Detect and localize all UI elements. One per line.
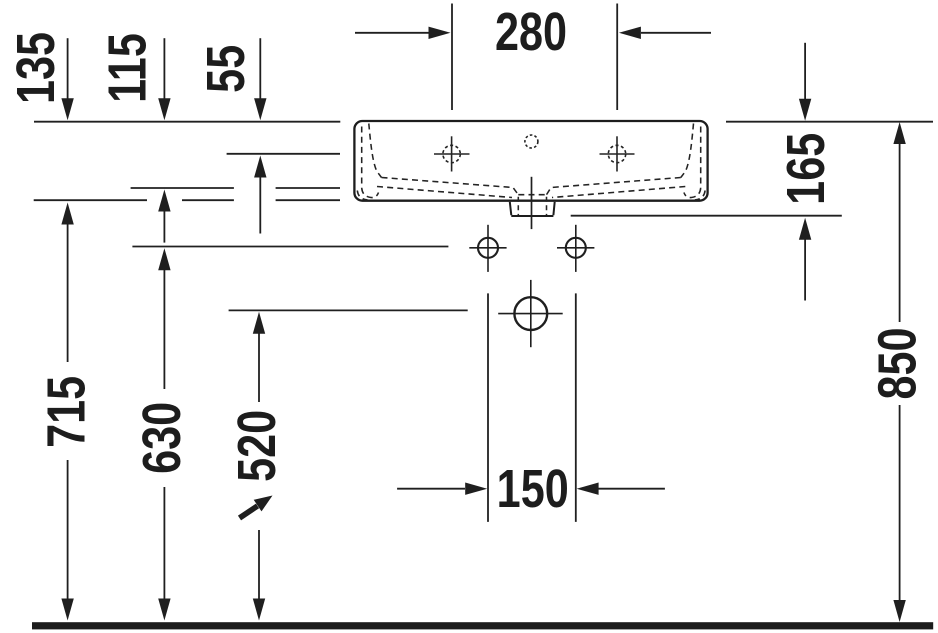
svg-text:280: 280	[495, 3, 567, 63]
svg-text:135: 135	[6, 32, 66, 104]
svg-text:850: 850	[868, 327, 928, 399]
svg-text:715: 715	[37, 376, 97, 448]
svg-text:150: 150	[497, 460, 569, 520]
svg-text:520: 520	[228, 410, 288, 482]
svg-text:55: 55	[197, 45, 257, 93]
svg-text:630: 630	[133, 402, 193, 474]
svg-text:115: 115	[98, 33, 158, 103]
svg-text:165: 165	[777, 133, 837, 205]
